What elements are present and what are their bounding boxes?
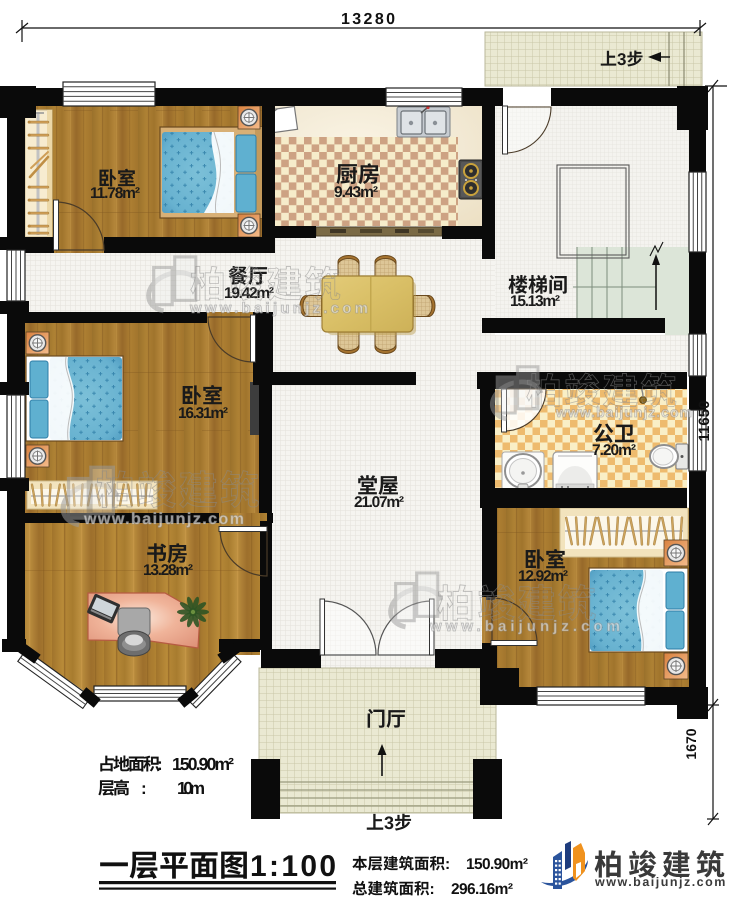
svg-text:11650: 11650 bbox=[696, 401, 713, 442]
svg-text:150.90m²: 150.90m² bbox=[172, 754, 234, 774]
svg-text:www.baijunjz.com: www.baijunjz.com bbox=[555, 404, 692, 420]
svg-text:21.07m²: 21.07m² bbox=[354, 494, 404, 511]
svg-text:10m: 10m bbox=[177, 778, 205, 798]
svg-text:www.baijunjz.com: www.baijunjz.com bbox=[594, 875, 727, 889]
svg-text:13.28m²: 13.28m² bbox=[143, 562, 193, 579]
svg-text:www.baijunjz.com: www.baijunjz.com bbox=[83, 511, 244, 528]
svg-text:9.43m²: 9.43m² bbox=[334, 184, 378, 201]
svg-text:15.13m²: 15.13m² bbox=[510, 293, 560, 310]
svg-text:1670: 1670 bbox=[683, 728, 699, 759]
svg-text:1:100: 1:100 bbox=[250, 850, 336, 883]
svg-text:296.16m²: 296.16m² bbox=[451, 881, 513, 898]
svg-text:7.20m²: 7.20m² bbox=[592, 442, 636, 459]
svg-text:13280: 13280 bbox=[341, 11, 395, 28]
svg-text:150.90m²: 150.90m² bbox=[466, 856, 528, 873]
svg-text:16.31m²: 16.31m² bbox=[178, 405, 228, 422]
svg-text::: : bbox=[141, 779, 147, 798]
svg-text::: : bbox=[157, 755, 163, 774]
svg-text:11.78m²: 11.78m² bbox=[90, 185, 140, 202]
svg-text:12.92m²: 12.92m² bbox=[518, 568, 568, 585]
